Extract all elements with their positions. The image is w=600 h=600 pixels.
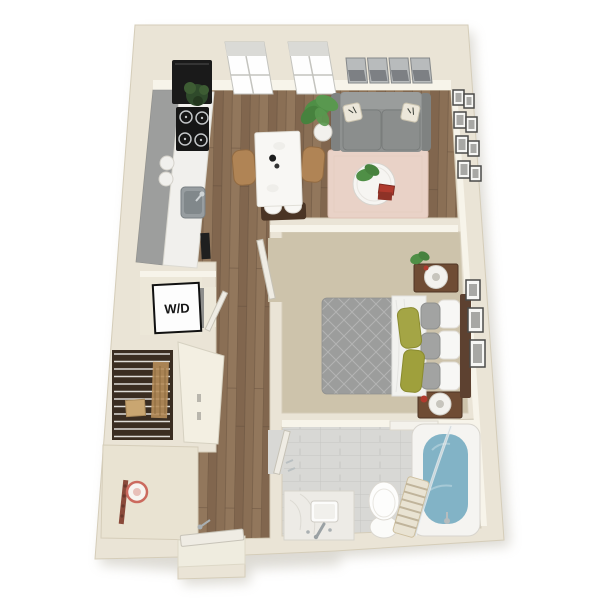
canister [160,156,174,170]
entry-floor [101,445,198,540]
bathtub-water [423,434,468,524]
vanity [284,491,354,540]
window [225,42,273,94]
cooktop [176,107,209,151]
wd-wall-face [140,271,216,277]
kitchen-sink [181,187,205,218]
pillow-white [438,300,460,328]
duvet [322,298,398,394]
throw-pillow [343,102,363,122]
pillow-olive [397,307,423,349]
pillow-white [438,331,460,359]
nightstand-decor [421,396,428,403]
living-bedroom-wall-face [270,225,458,232]
window-shade [225,42,266,56]
window-shade [288,42,329,56]
dining-table [255,131,303,207]
pillow-olive [400,349,425,393]
dining-chair [232,149,257,186]
throw-pillow [400,103,420,123]
storage-box [125,399,145,416]
bed [322,294,471,398]
floor-plan-render: W/D [0,0,600,600]
pillow-gray [421,303,440,329]
window [288,42,336,94]
closet-door-handle [197,412,201,420]
dining-chair [300,146,325,183]
canister [159,172,173,186]
closet-door [178,342,224,444]
sofa [331,92,431,152]
closet-door-handle [197,394,201,402]
trash-bin [200,233,210,259]
nightstand-lamp [429,393,451,415]
pillow-white [438,362,460,390]
floor-plan: W/D [0,0,600,600]
washer-dryer-label: W/D [164,300,190,316]
